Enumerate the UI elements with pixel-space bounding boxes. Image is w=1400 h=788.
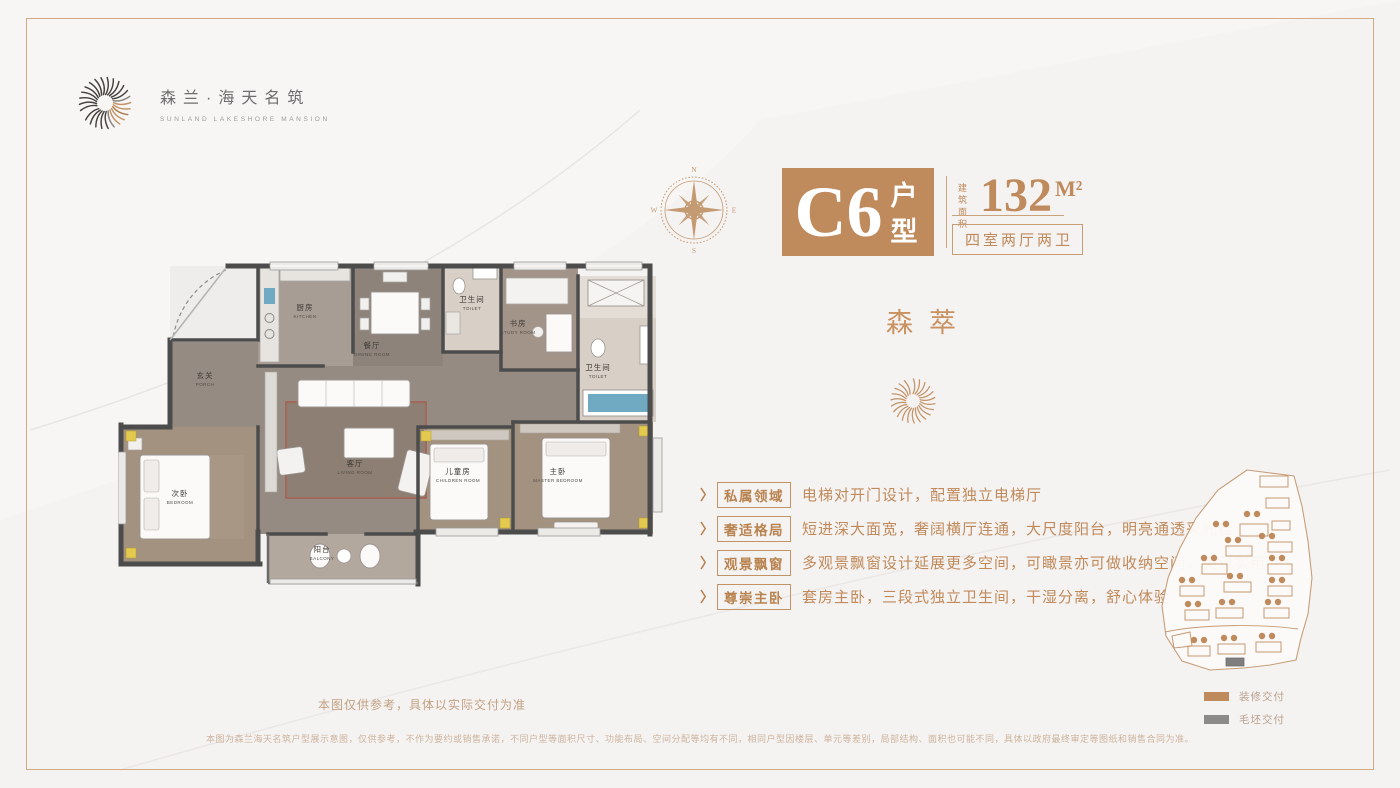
- compass-west-label: W: [650, 206, 658, 215]
- chevron-icon: 〉: [700, 553, 714, 573]
- unit-area-unit: M²: [1055, 176, 1082, 202]
- brand-logo: 森兰·海天名筑 SUNLAND LAKESHORE MANSION: [76, 74, 330, 132]
- feature-row: 〉 观景飘窗 多观景飘窗设计延展更多空间，可瞰景亦可做收纳空间，美观实用: [700, 551, 1200, 574]
- feature-row: 〉 私属领域 电梯对开门设计，配置独立电梯厅: [700, 483, 1200, 506]
- compass-icon: N S E W: [648, 164, 740, 256]
- legend-label-decorated: 装修交付: [1239, 689, 1285, 704]
- reference-note: 本图仅供参考，具体以实际交付为准: [318, 696, 526, 713]
- feature-label: 尊崇主卧: [717, 584, 791, 610]
- brand-name-en: SUNLAND LAKESHORE MANSION: [160, 116, 330, 123]
- site-plan-legend: 装修交付 毛坯交付: [1204, 689, 1344, 727]
- unit-code-suffix: 户型: [890, 178, 921, 251]
- legend-label-bare: 毛坯交付: [1239, 712, 1285, 727]
- theme-title: 森萃: [856, 301, 986, 340]
- feature-desc: 电梯对开门设计，配置独立电梯厅: [802, 484, 1042, 505]
- area-divider: [952, 215, 1064, 216]
- unit-title-box: C6 户型: [782, 168, 934, 256]
- feature-list: 〉 私属领域 电梯对开门设计，配置独立电梯厅 〉 奢适格局 短进深大面宽，奢阔横…: [700, 483, 1200, 619]
- feature-label: 观景飘窗: [717, 550, 791, 576]
- floor-plan-drawing: [118, 252, 666, 604]
- theme-wave-icon: [888, 376, 938, 426]
- legend-row-bare: 毛坯交付: [1204, 712, 1344, 727]
- feature-label: 私属领域: [717, 482, 791, 508]
- legend-row-decorated: 装修交付: [1204, 689, 1344, 704]
- wave-shell-icon: [76, 74, 134, 132]
- site-plan-map: [1152, 466, 1344, 678]
- chevron-icon: 〉: [700, 519, 714, 539]
- compass-north-label: N: [691, 165, 697, 174]
- floor-plan: 玄关PORCH 厨房KITCHEN 餐厅DINING ROOM 卫生间TOILE…: [118, 252, 666, 604]
- unit-area: 建筑面积 132 M²: [958, 174, 1082, 231]
- brand-name-cn: 森兰·海天名筑: [160, 84, 330, 108]
- legal-disclaimer: 本图为森兰海天名筑户型展示意图，仅供参考，不作为要约或销售承诺，不同户型等面积尺…: [206, 732, 1194, 745]
- chevron-icon: 〉: [700, 485, 714, 505]
- feature-desc: 套房主卧，三段式独立卫生间，干湿分离，舒心体验: [802, 586, 1170, 607]
- site-plan: 装修交付 毛坯交付: [1152, 466, 1344, 735]
- title-vertical-divider: [946, 176, 947, 248]
- feature-row: 〉 尊崇主卧 套房主卧，三段式独立卫生间，干湿分离，舒心体验: [700, 585, 1200, 608]
- compass-east-label: E: [732, 206, 737, 215]
- unit-code: C6: [794, 172, 882, 252]
- legend-swatch-decorated: [1204, 692, 1229, 701]
- unit-area-value: 132: [980, 174, 1052, 218]
- legend-swatch-bare: [1204, 715, 1229, 724]
- compass-south-label: S: [692, 246, 696, 255]
- chevron-icon: 〉: [700, 587, 714, 607]
- feature-row: 〉 奢适格局 短进深大面宽，奢阔横厅连通，大尺度阳台，明亮通透采光佳: [700, 517, 1200, 540]
- unit-layout-badge: 四室两厅两卫: [952, 224, 1083, 255]
- feature-label: 奢适格局: [717, 516, 791, 542]
